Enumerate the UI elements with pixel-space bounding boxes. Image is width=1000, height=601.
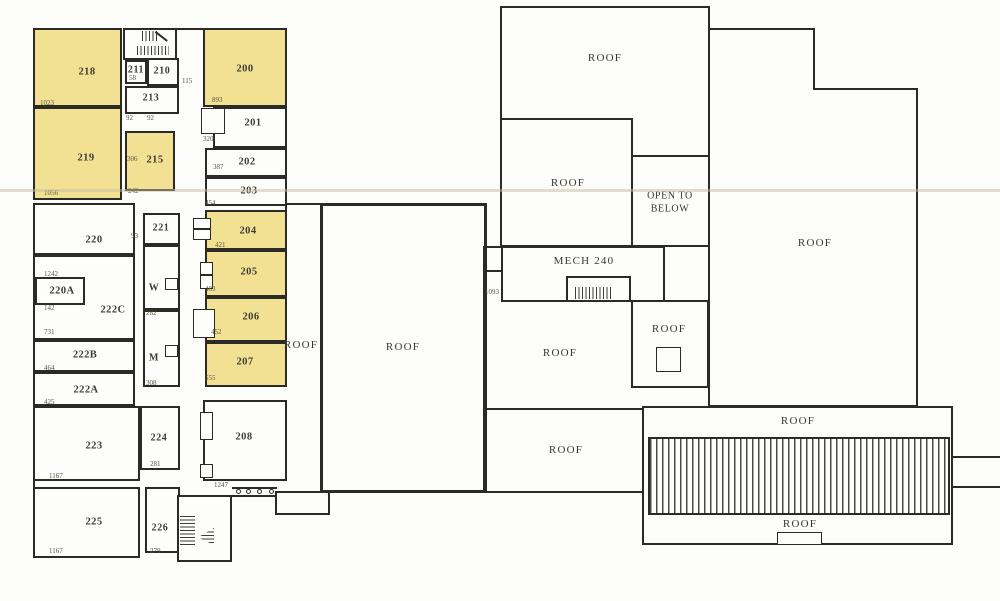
- roof-label-second: ROOF: [551, 177, 585, 189]
- roof-label-right: ROOF: [798, 237, 832, 249]
- dim-279: 279: [150, 548, 161, 555]
- roof-label-lower-mid: ROOF: [549, 444, 583, 456]
- wall: [487, 491, 644, 493]
- column-dot-icon: [246, 489, 251, 494]
- room-201-label: 201: [245, 118, 262, 129]
- room-220A-label: 220A: [50, 286, 75, 297]
- dim-454: 454: [205, 200, 216, 207]
- wall: [285, 206, 287, 214]
- closet-box: [193, 218, 211, 229]
- roof-label-penthouse-top: ROOF: [781, 415, 815, 427]
- wall: [813, 88, 918, 90]
- closet-box: [200, 262, 213, 275]
- dim-93: 93: [131, 233, 138, 240]
- wall: [177, 28, 205, 30]
- column-dot-icon: [257, 489, 262, 494]
- dim-282: 282: [146, 310, 157, 317]
- dim-306: 306: [127, 156, 138, 163]
- dim-1093: 1093: [485, 289, 499, 296]
- dim-92a: 92: [126, 115, 133, 122]
- room-208-label: 208: [236, 432, 253, 443]
- dim-893: 893: [212, 97, 223, 104]
- roof-label-small: ROOF: [652, 323, 686, 335]
- room-223-label: 223: [86, 441, 103, 452]
- room-200-label: 200: [237, 64, 254, 75]
- room-222A-label: 222A: [74, 385, 99, 396]
- wall: [33, 481, 35, 489]
- room-222B-label: 222B: [73, 350, 97, 361]
- dim-1247: 1247: [214, 482, 228, 489]
- dim-115: 115: [182, 78, 192, 85]
- room-219-label: 219: [78, 153, 95, 164]
- dim-421: 421: [215, 242, 226, 249]
- dim-281: 281: [150, 461, 161, 468]
- room-220: [33, 203, 135, 255]
- wall: [483, 408, 644, 410]
- room-226-label: 226: [152, 523, 169, 534]
- restroom-women-label: W: [149, 283, 160, 294]
- roof-label-penthouse-bottom: ROOF: [783, 518, 817, 530]
- room-225-label: 225: [86, 517, 103, 528]
- room-221-label: 221: [153, 223, 170, 234]
- stair-treads-icon: [180, 516, 195, 547]
- room-215-label: 215: [147, 155, 164, 166]
- wall: [566, 276, 631, 278]
- dim-425: 425: [44, 399, 55, 406]
- roof-area-small: [631, 300, 709, 388]
- room-218-label: 218: [79, 67, 96, 78]
- dim-731: 731: [44, 329, 55, 336]
- wall: [566, 276, 568, 302]
- dim-308: 308: [146, 380, 157, 387]
- hatched-roof-area: [648, 437, 950, 515]
- roof-area-right-step: [708, 28, 815, 90]
- dim-1023: 1023: [40, 100, 54, 107]
- corridor-wall: [232, 495, 277, 497]
- closet-box: [193, 229, 211, 240]
- restroom-men-label: M: [149, 353, 159, 364]
- corridor-wall: [953, 486, 1000, 488]
- room-203-label: 203: [241, 186, 258, 197]
- dim-387: 387: [213, 164, 224, 171]
- restroom-fixture: [165, 278, 178, 290]
- open-to-below-label-line1: OPEN TO: [647, 191, 693, 202]
- column-dot-icon: [236, 489, 241, 494]
- dim-464: 464: [44, 365, 55, 372]
- dim-58: 58: [129, 75, 136, 82]
- column-dot-icon: [269, 489, 274, 494]
- corridor-wall: [953, 456, 1000, 458]
- roof-access-notch: [777, 532, 822, 545]
- dim-1167b: 1167: [49, 548, 63, 555]
- room-201-closet: [201, 108, 225, 134]
- roof-bump: [275, 491, 330, 515]
- roof-label-center: ROOF: [386, 341, 420, 353]
- dim-242: 242: [128, 188, 139, 195]
- dim-92b: 92: [147, 115, 154, 122]
- dim-142: 142: [44, 305, 55, 312]
- roof-label-top: ROOF: [588, 52, 622, 64]
- roof-hatch-box: [656, 347, 681, 372]
- stair-treads-icon: [137, 46, 169, 55]
- room-204-label: 204: [240, 226, 257, 237]
- room-220-label: 220: [86, 235, 103, 246]
- roof-label-mid: ROOF: [543, 347, 577, 359]
- dim-1242: 1242: [44, 271, 58, 278]
- dim-1056: 1056: [44, 190, 58, 197]
- room-202-label: 202: [239, 157, 256, 168]
- dim-320: 320: [203, 136, 214, 143]
- room-210-label: 210: [154, 66, 171, 77]
- stair-treads-icon: [575, 287, 613, 299]
- roof-label-strip: ROOF: [284, 339, 318, 351]
- wall: [629, 276, 631, 302]
- room-222C-label: 222C: [101, 305, 126, 316]
- closet-box: [200, 464, 213, 478]
- dim-555: 555: [205, 375, 216, 382]
- room-226: [145, 487, 180, 553]
- room-207-label: 207: [237, 357, 254, 368]
- room-206-label: 206: [243, 312, 260, 323]
- dim-1167a: 1167: [49, 473, 63, 480]
- room-213-label: 213: [143, 93, 160, 104]
- floor-plan: 218 219 211 210 213 215 200 201 202 203 …: [0, 0, 1000, 601]
- wall: [287, 203, 320, 205]
- dim-483: 483: [205, 286, 216, 293]
- closet-box: [200, 412, 213, 440]
- dim-452: 452: [211, 329, 222, 336]
- room-205-label: 205: [241, 267, 258, 278]
- restroom-fixture: [165, 345, 178, 357]
- open-to-below-label-line2: BELOW: [651, 204, 690, 215]
- room-224-label: 224: [151, 433, 168, 444]
- mech-240-label: MECH 240: [554, 255, 615, 267]
- room-218: [33, 28, 122, 107]
